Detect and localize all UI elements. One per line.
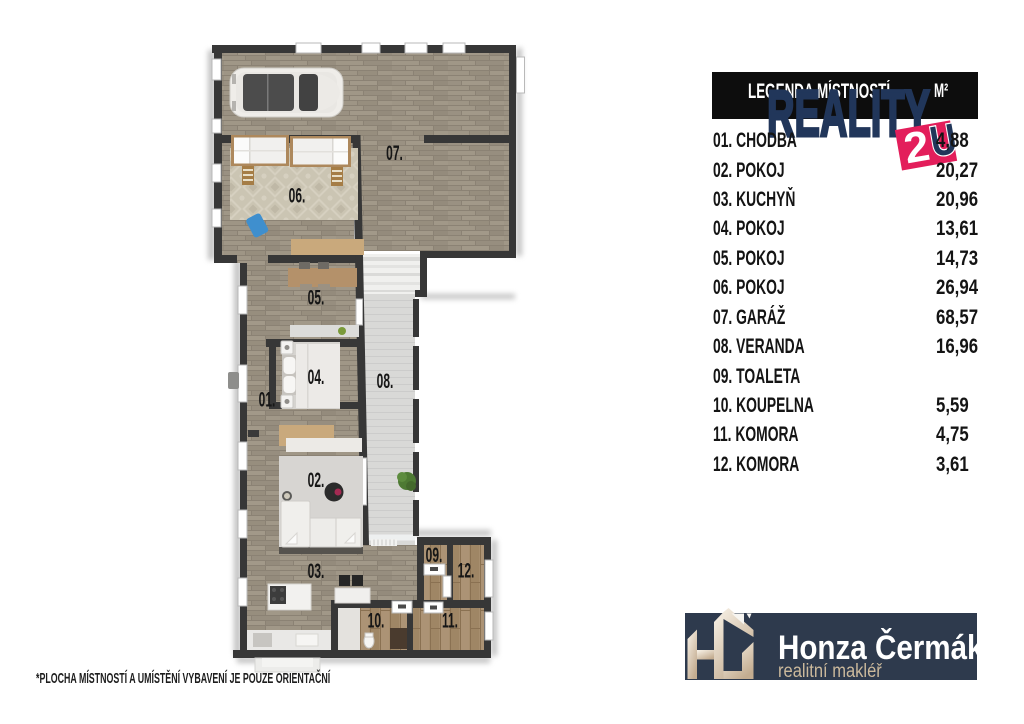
svg-text:04.: 04. xyxy=(308,366,325,389)
svg-text:03.: 03. xyxy=(308,560,325,583)
svg-text:05.: 05. xyxy=(308,286,325,309)
svg-text:02.: 02. xyxy=(308,469,325,492)
svg-text:09.: 09. xyxy=(426,544,443,567)
svg-text:01.: 01. xyxy=(259,388,276,411)
svg-text:06.: 06. xyxy=(289,184,306,207)
svg-text:11.: 11. xyxy=(442,609,458,632)
svg-text:07.: 07. xyxy=(386,142,403,165)
svg-text:10.: 10. xyxy=(368,609,385,632)
svg-text:12.: 12. xyxy=(458,559,475,582)
svg-text:08.: 08. xyxy=(377,370,394,393)
